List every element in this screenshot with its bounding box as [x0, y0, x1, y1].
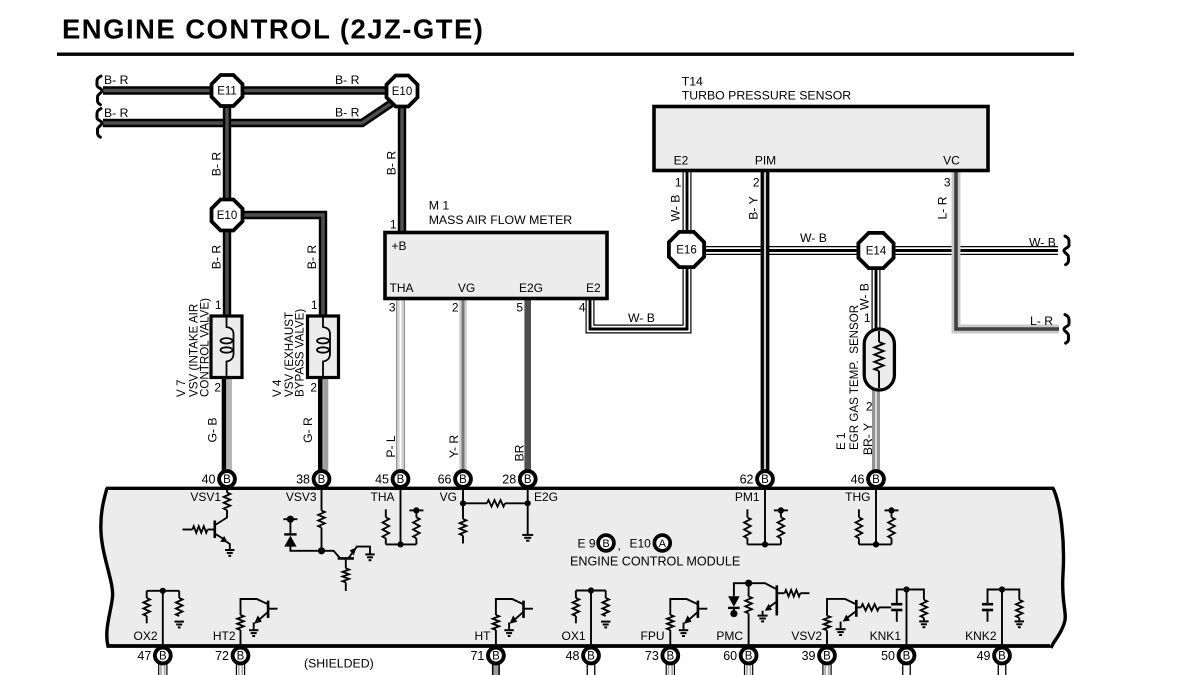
svg-text:3: 3 [944, 176, 951, 190]
svg-text:B- R: B- R [209, 152, 223, 177]
svg-text:B: B [237, 651, 245, 663]
svg-text:THA: THA [390, 281, 414, 295]
svg-text:V 7: V 7 [175, 380, 188, 397]
svg-text:OX1: OX1 [561, 629, 585, 643]
svg-text:L- R: L- R [935, 196, 949, 219]
svg-text:VSV3: VSV3 [286, 490, 317, 504]
svg-text:2: 2 [452, 301, 459, 315]
svg-text:B: B [524, 474, 532, 486]
svg-text:L- R: L- R [1030, 314, 1053, 328]
svg-text:W- B: W- B [1029, 236, 1056, 250]
svg-text:VG: VG [440, 490, 457, 504]
svg-text:CONTROL VALVE): CONTROL VALVE) [199, 298, 212, 397]
svg-text:W- B: W- B [800, 231, 827, 245]
svg-text:B- R: B- R [335, 73, 360, 87]
svg-text:PM1: PM1 [735, 490, 760, 504]
svg-text:E14: E14 [866, 246, 887, 258]
svg-text:B: B [872, 474, 880, 486]
svg-text:PIM: PIM [755, 154, 776, 168]
svg-text:40: 40 [202, 473, 216, 487]
svg-text:THA: THA [371, 490, 395, 504]
svg-text:W- B: W- B [668, 195, 682, 222]
svg-text:OX2: OX2 [133, 629, 157, 643]
svg-text:B: B [397, 474, 405, 486]
svg-text:BR- Y: BR- Y [861, 423, 875, 455]
svg-text:(SHIELDED): (SHIELDED) [304, 657, 374, 671]
svg-text:B: B [998, 651, 1006, 663]
svg-text:B: B [587, 651, 595, 663]
svg-text:B- R: B- R [305, 245, 319, 270]
svg-text:T14: T14 [682, 75, 703, 89]
svg-text:4: 4 [579, 301, 586, 315]
svg-text:2: 2 [866, 400, 873, 414]
svg-text:P- L: P- L [384, 435, 398, 458]
svg-text:B: B [318, 474, 326, 486]
svg-text:B: B [745, 651, 753, 663]
svg-text:62: 62 [740, 473, 754, 487]
svg-text:5: 5 [516, 301, 523, 315]
svg-text:E11: E11 [217, 86, 237, 98]
svg-text:VC: VC [943, 154, 960, 168]
svg-text:B: B [459, 474, 467, 486]
svg-text:E10: E10 [392, 86, 412, 98]
svg-text:THG: THG [845, 490, 870, 504]
svg-text:B: B [903, 651, 911, 663]
svg-text:EGR GAS TEMP. SENSOR: EGR GAS TEMP. SENSOR [848, 305, 861, 450]
svg-text:TURBO PRESSURE SENSOR: TURBO PRESSURE SENSOR [682, 89, 852, 103]
svg-text:ENGINE CONTROL MODULE: ENGINE CONTROL MODULE [570, 555, 740, 569]
svg-text:2: 2 [214, 381, 221, 395]
svg-text:HT: HT [475, 629, 492, 643]
svg-text:B- R: B- R [335, 106, 360, 120]
svg-text:PMC: PMC [716, 629, 743, 643]
svg-text:1: 1 [311, 298, 318, 312]
svg-text:G- B: G- B [206, 417, 220, 442]
svg-text:VSV2: VSV2 [791, 629, 822, 643]
svg-text:BYPASS VALVE): BYPASS VALVE) [294, 309, 307, 397]
svg-text:E 1: E 1 [835, 433, 848, 450]
svg-text:1: 1 [215, 298, 222, 312]
svg-text:2: 2 [310, 381, 317, 395]
svg-text:VG: VG [458, 281, 475, 295]
svg-text:Y- R: Y- R [447, 435, 461, 458]
svg-text:B: B [602, 538, 609, 550]
svg-text:2: 2 [753, 176, 760, 190]
svg-text:E2: E2 [586, 281, 601, 295]
svg-text:60: 60 [723, 649, 737, 663]
svg-text:47: 47 [137, 649, 151, 663]
svg-text:B: B [159, 651, 167, 663]
svg-text:50: 50 [881, 649, 895, 663]
svg-text:W- B: W- B [858, 283, 872, 310]
svg-text:MASS AIR FLOW METER: MASS AIR FLOW METER [429, 213, 573, 227]
svg-text:1: 1 [390, 218, 397, 232]
svg-text:1: 1 [675, 176, 682, 190]
svg-text:B: B [492, 651, 500, 663]
svg-text:B: B [666, 651, 674, 663]
svg-text:BR: BR [512, 444, 526, 461]
svg-text:B- Y: B- Y [747, 196, 761, 219]
svg-text:46: 46 [851, 473, 865, 487]
svg-text:B: B [823, 651, 831, 663]
svg-text:E2: E2 [674, 154, 689, 168]
svg-text:B- R: B- R [104, 106, 129, 120]
svg-text:72: 72 [215, 649, 229, 663]
svg-text:W- B: W- B [628, 311, 655, 325]
svg-text:73: 73 [645, 649, 659, 663]
svg-text:B- R: B- R [384, 151, 398, 176]
svg-text:E2G: E2G [534, 490, 558, 504]
svg-text:E10: E10 [217, 210, 237, 222]
svg-text:B- R: B- R [104, 73, 129, 87]
svg-text:3: 3 [389, 301, 396, 315]
svg-text:HT2: HT2 [213, 629, 236, 643]
svg-text:E 9: E 9 [578, 537, 596, 551]
svg-text:E10: E10 [630, 537, 652, 551]
svg-text:ENGINE CONTROL (2JZ-GTE): ENGINE CONTROL (2JZ-GTE) [62, 14, 484, 45]
svg-text:A: A [659, 538, 667, 550]
svg-text:E2G: E2G [519, 281, 543, 295]
svg-text:+B: +B [392, 239, 407, 253]
svg-text:48: 48 [566, 649, 580, 663]
svg-text:45: 45 [375, 473, 389, 487]
svg-text:49: 49 [977, 649, 991, 663]
svg-text:39: 39 [802, 649, 816, 663]
svg-text:1: 1 [864, 311, 871, 325]
svg-text:KNK1: KNK1 [870, 629, 902, 643]
svg-text:FPU: FPU [641, 629, 665, 643]
svg-text:B: B [761, 474, 769, 486]
svg-text:,: , [618, 539, 621, 553]
svg-text:VSV1: VSV1 [190, 490, 221, 504]
svg-text:71: 71 [470, 649, 484, 663]
svg-text:E16: E16 [676, 245, 696, 257]
svg-text:B: B [223, 474, 231, 486]
svg-text:28: 28 [502, 473, 516, 487]
svg-text:M 1: M 1 [429, 199, 450, 213]
svg-text:KNK2: KNK2 [965, 629, 997, 643]
svg-text:G- R: G- R [301, 417, 315, 443]
svg-text:38: 38 [296, 473, 310, 487]
svg-text:66: 66 [438, 473, 452, 487]
svg-text:B- R: B- R [209, 245, 223, 270]
